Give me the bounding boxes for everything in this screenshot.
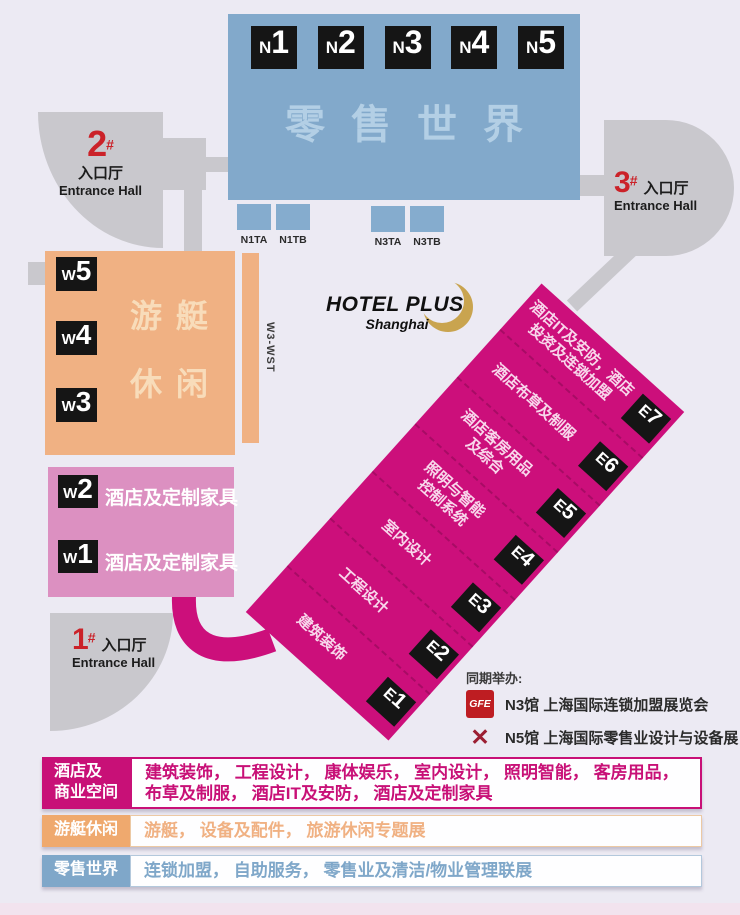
legend-retail-content-line1: 连锁加盟， 自助服务， 零售业及清洁/物业管理联展	[144, 859, 697, 883]
bottom-strip	[0, 903, 740, 915]
hall-w4-prefix: W	[62, 331, 76, 348]
legend-retail-label: 零售世界	[42, 855, 130, 887]
w3-wst-strip-label: W3-WST	[264, 322, 276, 373]
hall-n3-badge: N3	[385, 26, 431, 69]
hall-n1-prefix: N	[259, 38, 271, 58]
retail-world-block: N1 N2 N3 N4 N5 零售世界	[228, 14, 580, 200]
legend-hotel-label: 酒店及 商业空间	[42, 757, 130, 809]
entrance-1-text: 1# 入口厅 Entrance Hall	[72, 625, 155, 670]
tab-n1tb	[276, 204, 310, 230]
n5-expo-logo: ✕	[466, 726, 494, 749]
yacht-leisure-block: W5 W4 W3 游艇 休闲	[45, 251, 235, 455]
concurrent-n5-text: N5馆 上海国际零售业设计与设备展	[505, 727, 738, 748]
legend-yacht-content-line1: 游艇， 设备及配件， 旅游休闲专题展	[144, 819, 697, 843]
hall-w5-number: 5	[76, 257, 92, 285]
legend-yacht-label: 游艇休闲	[42, 815, 130, 847]
legend-row-yacht: 游艇休闲 游艇， 设备及配件， 旅游休闲专题展	[42, 815, 702, 847]
entrance-2-number: 2	[87, 123, 106, 164]
hall-w4-number: 4	[76, 321, 92, 349]
entrance-1-number: 1	[72, 623, 88, 656]
entrance-hall-3: 3# 入口厅 Entrance Hall	[604, 120, 734, 256]
entrance-2-zh: 入口厅	[38, 162, 163, 183]
entrance-3-hash: #	[630, 173, 638, 189]
legend-row-hotel: 酒店及 商业空间 建筑装饰， 工程设计， 康体娱乐， 室内设计， 照明智能， 客…	[42, 757, 702, 809]
legend-yacht-label-line1: 游艇休闲	[54, 819, 130, 841]
legend-hotel-label-line2: 商业空间	[54, 782, 130, 803]
n3-tabs	[371, 206, 444, 232]
hall-w3-prefix: W	[62, 398, 76, 415]
legend-retail-label-line1: 零售世界	[54, 859, 130, 881]
entrance-2-text: 2# 入口厅 Entrance Hall	[38, 126, 163, 198]
legend-yacht-content: 游艇， 设备及配件， 旅游休闲专题展	[130, 815, 702, 847]
hall-n5-badge: N5	[518, 26, 564, 69]
logo-title: HOTEL PLUS	[326, 293, 464, 317]
hall-n1-badge: N1	[251, 26, 297, 69]
hall-w1-number: 1	[77, 540, 93, 568]
n3-tab-labels: N3TA N3TB	[371, 236, 444, 248]
entrance-2-en: Entrance Hall	[38, 183, 163, 198]
legend-hotel-content-line1: 建筑装饰， 工程设计， 康体娱乐， 室内设计， 照明智能， 客房用品，	[145, 762, 696, 783]
entrance-3-en: Entrance Hall	[614, 198, 697, 213]
concurrent-heading: 同期举办:	[466, 668, 522, 687]
legend-retail-content: 连锁加盟， 自助服务， 零售业及清洁/物业管理联展	[130, 855, 702, 887]
yacht-word-1: 游艇	[116, 291, 236, 337]
hall-n1-number: 1	[271, 26, 289, 58]
label-n1tb: N1TB	[276, 234, 310, 246]
west-furniture-block: W2 酒店及定制家具 W1 酒店及定制家具	[48, 467, 234, 597]
entrance-3-text: 3# 入口厅 Entrance Hall	[614, 168, 697, 213]
legend-hotel-content: 建筑装饰， 工程设计， 康体娱乐， 室内设计， 照明智能， 客房用品， 布草及制…	[130, 757, 702, 809]
n1-tabs	[237, 204, 310, 230]
hall-n3-prefix: N	[392, 38, 404, 58]
yacht-word-2: 休闲	[116, 359, 236, 405]
hall-w5-prefix: W	[62, 267, 76, 284]
corridor-left-block	[162, 138, 206, 190]
legend-hotel-label-line1: 酒店及	[54, 761, 130, 782]
exhibition-floorplan: 2# 入口厅 Entrance Hall 3# 入口厅 Entrance Hal…	[0, 0, 740, 915]
concurrent-item-n3: GFE N3馆 上海国际连锁加盟展览会	[466, 690, 708, 718]
hall-w2-label: 酒店及定制家具	[105, 483, 238, 510]
entrance-2-hash: #	[106, 137, 114, 153]
hall-w5-badge: W5	[56, 257, 97, 291]
hall-n4-prefix: N	[459, 38, 471, 58]
hall-n4-number: 4	[471, 26, 489, 58]
hall-w3-number: 3	[76, 388, 92, 416]
hall-w1-prefix: W	[63, 550, 77, 567]
entrance-3-zh: 入口厅	[643, 177, 688, 198]
hall-n5-prefix: N	[526, 38, 538, 58]
logo-subtitle: Shanghai	[322, 316, 472, 332]
hall-n2-number: 2	[338, 26, 356, 58]
entrance-1-en: Entrance Hall	[72, 655, 155, 670]
hall-n4-badge: N4	[451, 26, 497, 69]
hall-w4-badge: W4	[56, 321, 97, 355]
retail-world-title: 零售世界	[241, 92, 593, 150]
concurrent-n3-text: N3馆 上海国际连锁加盟展览会	[505, 694, 708, 715]
concurrent-item-n5: ✕ N5馆 上海国际零售业设计与设备展	[466, 726, 738, 749]
legend-hotel-content-line2: 布草及制服， 酒店IT及安防， 酒店及定制家具	[145, 783, 696, 804]
tab-n1ta	[237, 204, 271, 230]
entrance-1-hash: #	[88, 630, 96, 646]
hall-w2-prefix: W	[63, 485, 77, 502]
entrance-3-number: 3	[614, 166, 630, 199]
hall-n2-badge: N2	[318, 26, 364, 69]
hall-w2-badge: W2	[58, 475, 98, 508]
n1-tab-labels: N1TA N1TB	[237, 234, 310, 246]
legend-row-retail: 零售世界 连锁加盟， 自助服务， 零售业及清洁/物业管理联展	[42, 855, 702, 887]
entrance-1-zh: 入口厅	[101, 634, 146, 655]
label-n3tb: N3TB	[410, 236, 444, 248]
hall-w1-label: 酒店及定制家具	[105, 548, 238, 575]
n-hall-badges: N1 N2 N3 N4 N5	[251, 26, 564, 69]
hall-w1-badge: W1	[58, 540, 98, 573]
label-n3ta: N3TA	[371, 236, 405, 248]
gfe-logo: GFE	[466, 690, 494, 718]
label-n1ta: N1TA	[237, 234, 271, 246]
tab-n3ta	[371, 206, 405, 232]
hall-w2-number: 2	[77, 475, 93, 503]
hall-n5-number: 5	[538, 26, 556, 58]
hall-w3-badge: W3	[56, 388, 97, 422]
w3-wst-strip	[242, 253, 259, 443]
hotel-plus-logo: HOTEL PLUS Shanghai	[322, 278, 482, 342]
hall-n3-number: 3	[405, 26, 423, 58]
tab-n3tb	[410, 206, 444, 232]
corridor-left-strip	[184, 188, 202, 254]
hall-n2-prefix: N	[326, 38, 338, 58]
